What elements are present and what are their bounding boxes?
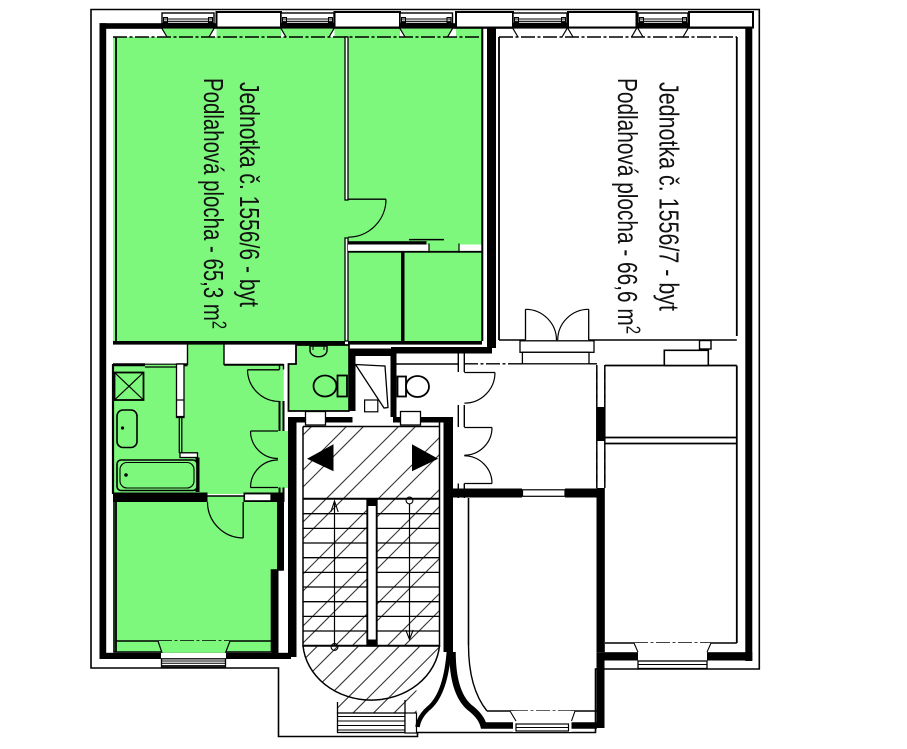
svg-text:Jednotka č. 1556/6 - byt: Jednotka č. 1556/6 - byt (234, 82, 265, 307)
svg-text:Podlahová plocha - 66,6 m2: Podlahová plocha - 66,6 m2 (612, 78, 644, 334)
svg-text:Jednotka č. 1556/7 - byt: Jednotka č. 1556/7 - byt (654, 82, 685, 311)
svg-text:Podlahová plocha - 65,3 m2: Podlahová plocha - 65,3 m2 (198, 78, 230, 329)
